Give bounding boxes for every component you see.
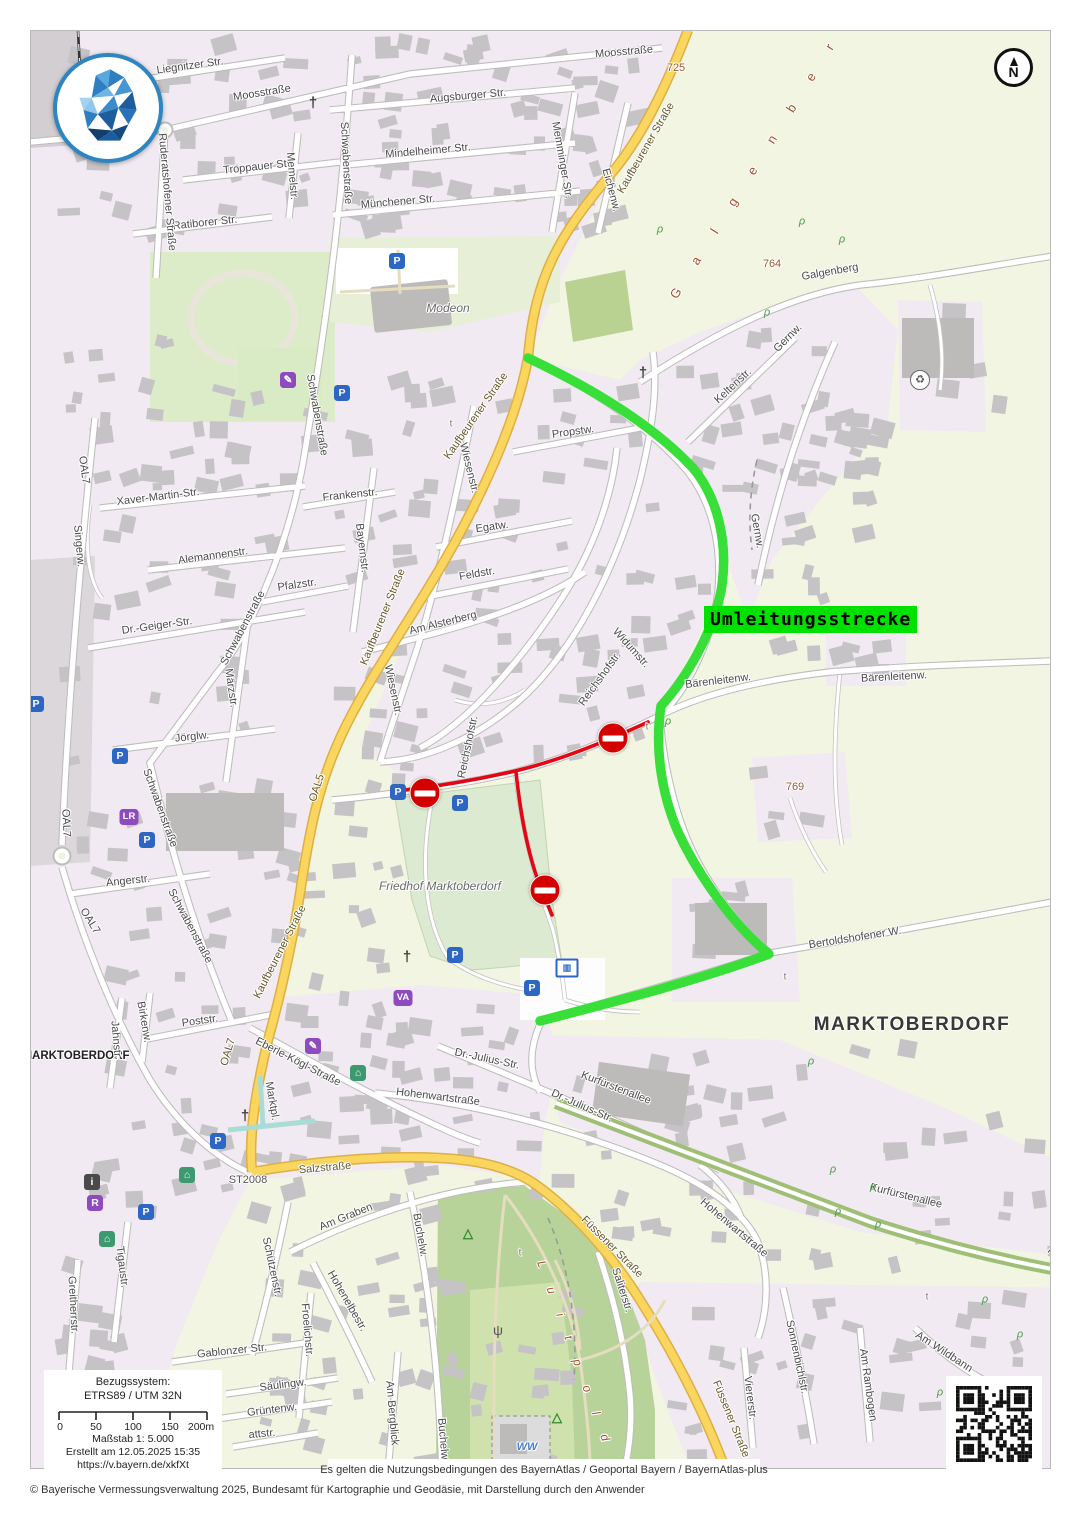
compass-letter: N: [1008, 65, 1018, 79]
frame-left: [0, 0, 30, 1527]
tick-0: 0: [57, 1421, 63, 1434]
tick-50: 50: [90, 1421, 102, 1434]
bayernatlas-map-page: { "overlay": { "detour_label": "Umleitun…: [0, 0, 1080, 1527]
short-url[interactable]: https://v.bayern.de/xkfXt: [48, 1459, 218, 1472]
map-canvas[interactable]: [0, 0, 1080, 1532]
scale-text: Maßstab 1: 5.000: [48, 1433, 218, 1446]
terms-of-use-text[interactable]: Es gelten die Nutzungsbedingungen des Ba…: [328, 1459, 760, 1480]
scale-bar: [58, 1409, 208, 1420]
tick-150: 150: [161, 1421, 179, 1434]
compass-north-icon[interactable]: N: [994, 48, 1033, 87]
created-text: Erstellt am 12.05.2025 15:35: [48, 1446, 218, 1459]
detour-route-label: Umleitungsstrecke: [704, 606, 917, 633]
copyright-text: © Bayerische Vermessungsverwaltung 2025,…: [30, 1484, 645, 1496]
frame-right: [1050, 0, 1080, 1527]
tick-100: 100: [124, 1421, 142, 1434]
scale-ticks: 0 50 100 150 200m: [58, 1421, 208, 1433]
scale-box: Bezugssystem: ETRS89 / UTM 32N 0 50 100 …: [44, 1370, 222, 1477]
qr-code-box: [946, 1376, 1042, 1472]
ref-system-value: ETRS89 / UTM 32N: [48, 1390, 218, 1404]
bayernatlas-logo[interactable]: [53, 53, 163, 163]
bavaria-lowpoly-icon: [57, 57, 159, 159]
frame-top: [0, 0, 1080, 30]
ref-system-label: Bezugssystem:: [48, 1376, 218, 1390]
qr-code: [956, 1386, 1032, 1462]
tick-200m: 200m: [188, 1421, 214, 1434]
